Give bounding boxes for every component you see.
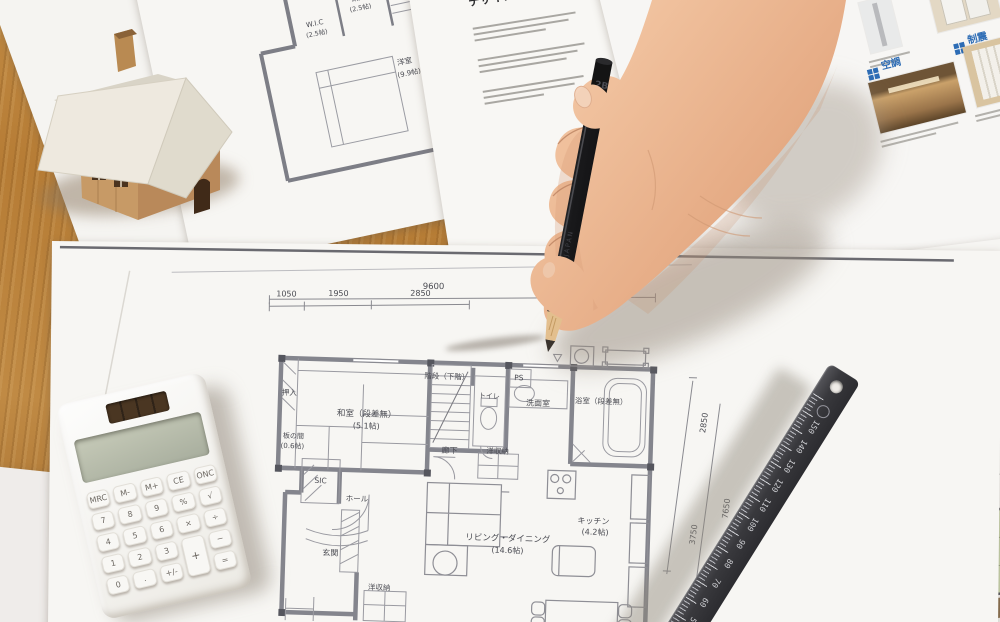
calculator-keypad: MRC M- M+ CE ONC 7 8 9 % √ 4 5 6 × ÷ 1 2…	[86, 464, 238, 596]
calc-key-percent: %	[171, 491, 197, 513]
room-closet1: 洋収納	[486, 445, 509, 456]
calc-key-sqrt: √	[197, 485, 223, 507]
calc-key-9: 9	[144, 497, 170, 519]
dim-right-7650: 7650	[721, 498, 733, 519]
solar-panel	[105, 391, 170, 424]
room-itanoma: 板の間	[283, 431, 304, 441]
room-yoshitsu: 洋室	[396, 54, 413, 67]
calc-key-5: 5	[122, 525, 148, 547]
calc-key-mminus: M-	[112, 482, 138, 504]
calc-key-multiply: ×	[176, 513, 202, 535]
calc-key-1: 1	[100, 553, 126, 575]
dim-right-3750: 3750	[688, 524, 700, 545]
svg-text:(14.6帖): (14.6帖)	[491, 545, 523, 556]
calc-key-7: 7	[91, 510, 117, 532]
calc-key-6: 6	[149, 519, 175, 541]
dim-1950: 1950	[328, 289, 348, 298]
room-hall: ホール	[346, 494, 369, 504]
room-living: リビング・ダイニング	[465, 532, 551, 546]
calc-key-ce: CE	[166, 470, 192, 492]
room-rouka: 廊下	[441, 445, 457, 455]
hand-with-pencil: 2B MADE IN JAPAN	[430, 0, 1000, 420]
calc-key-dot: .	[132, 568, 158, 590]
svg-text:(4.2帖): (4.2帖)	[581, 526, 608, 537]
dim-2850: 2850	[410, 289, 430, 298]
room-washitsu: 和室（段差無）	[337, 408, 397, 421]
room-closet2: 洋収納	[368, 582, 391, 593]
calc-key-8: 8	[117, 504, 143, 526]
calc-key-divide: ÷	[202, 506, 228, 528]
calc-key-minus: −	[207, 528, 233, 550]
calc-key-0: 0	[105, 574, 131, 596]
svg-text:(0.6帖): (0.6帖)	[280, 441, 304, 451]
calc-key-2: 2	[127, 546, 153, 568]
calc-key-plus: +	[181, 534, 212, 577]
room-genkan: 玄関	[322, 547, 338, 557]
calc-key-mplus: M+	[139, 476, 165, 498]
calc-key-onc: ONC	[192, 464, 218, 486]
house-door	[194, 179, 210, 214]
calc-key-4: 4	[96, 531, 122, 553]
calc-key-equals: =	[212, 549, 238, 571]
calc-key-plusminus: +/-	[159, 562, 185, 584]
house-model	[36, 22, 241, 222]
calc-key-3: 3	[154, 540, 180, 562]
dim-1050: 1050	[276, 289, 296, 298]
room-oshiire: 押入	[282, 387, 298, 397]
pencil-lead	[545, 339, 555, 352]
calc-key-mrc: MRC	[86, 488, 112, 510]
svg-text:(5.1帖): (5.1帖)	[353, 420, 380, 431]
room-sic: SIC	[314, 476, 326, 485]
photo-scene: Master Plan 1900 W.I.C (2.5帖)	[0, 0, 1000, 622]
svg-text:(9.9帖): (9.9帖)	[397, 66, 422, 80]
room-kitchen: キッチン	[577, 516, 609, 526]
